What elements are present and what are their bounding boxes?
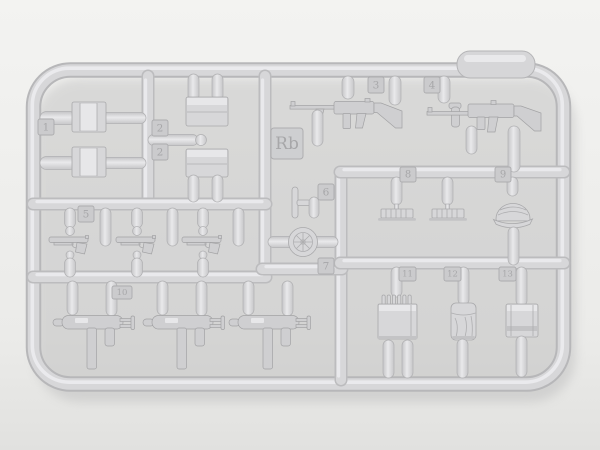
gun-bolt-handle: [491, 101, 496, 105]
tab-2a-label: 2: [157, 123, 164, 135]
sprue-arm: [102, 113, 146, 124]
sprue-post: [342, 76, 354, 99]
sprue-arm: [40, 157, 76, 170]
part-box-1b: [72, 147, 106, 177]
sprue-post: [65, 208, 76, 228]
tab-8-label: 8: [405, 170, 411, 181]
part-ammo-box-2b: [186, 149, 228, 177]
sprue-post: [212, 175, 223, 202]
gun-receiver: [334, 102, 374, 115]
gun-front-sight: [428, 108, 432, 113]
part-number-tab-11: 11: [399, 267, 416, 281]
tab-10-label: 10: [117, 288, 128, 298]
sprue-gate-bulb: [199, 227, 208, 236]
sprue-post: [516, 267, 527, 306]
horizontal-runner-right-upper: [340, 170, 564, 172]
tab-3-label: 3: [373, 80, 380, 92]
drum-spokes: [294, 233, 312, 251]
horizontal-runner-right-lower: [340, 261, 564, 263]
part-crate-13: [506, 304, 538, 337]
sprue-letter-tab: Rb: [271, 128, 303, 159]
tab-2b-label: 2: [157, 147, 164, 159]
vertical-runner-3: [339, 174, 341, 380]
gun-barrel: [427, 112, 470, 116]
sprue-post: [100, 208, 111, 246]
sprue-post: [132, 208, 143, 228]
part-box-1a: [72, 102, 106, 132]
vertical-runner-2: [263, 76, 265, 274]
sprue-post: [442, 177, 453, 205]
part-number-tab-2b: 2: [152, 144, 168, 160]
part-number-tab-10: 10: [112, 286, 132, 299]
sprue-post: [312, 110, 323, 146]
gun-receiver: [468, 104, 514, 118]
tab-1-label: 1: [43, 122, 50, 134]
sprue-handle-lug: [457, 51, 535, 78]
sprue-post: [402, 340, 413, 378]
sprue-post: [457, 339, 468, 378]
sprue-post: [198, 208, 209, 228]
tab-4-label: 4: [429, 80, 436, 92]
gun-barrel: [290, 106, 336, 110]
sprue-post: [233, 208, 244, 246]
sprue-post: [132, 258, 143, 277]
sprue-gate-bulb: [133, 227, 142, 236]
sprue-gate-bulb: [66, 227, 75, 236]
sprue-post: [508, 126, 520, 172]
gun-rear-sight: [365, 99, 370, 103]
gun-magazine: [343, 114, 351, 129]
sprue-post: [188, 175, 199, 202]
sprue-post: [198, 258, 209, 277]
part-number-tab-4: 4: [424, 77, 440, 93]
part-magazine-clip-8a: [378, 209, 416, 221]
sprue-post: [508, 227, 519, 265]
part-pouch-12: [451, 303, 476, 340]
part-magazine-clip-8b: [429, 209, 467, 221]
part-number-tab-2a: 2: [152, 120, 168, 136]
part-ammo-box-2a: [186, 97, 228, 126]
sprue-post: [65, 258, 76, 277]
tab-9-label: 9: [500, 170, 506, 181]
tab-11-label: 11: [402, 269, 413, 279]
part-drum-magazine-7: [289, 228, 318, 257]
sprue-post: [243, 281, 254, 315]
tab-5-label: 5: [83, 209, 90, 221]
sprue-letter-label: Rb: [275, 134, 299, 154]
tab-6-label: 6: [323, 187, 330, 199]
part-number-tab-1: 1: [38, 119, 54, 135]
part-number-tab-8: 8: [400, 167, 416, 182]
sprue-post: [196, 281, 207, 316]
sprue-post: [309, 197, 319, 218]
sprue-photograph: Rb 1: [0, 0, 600, 450]
sprue-post: [466, 126, 477, 154]
sprue-post: [282, 281, 293, 316]
tab-13-label: 13: [502, 269, 513, 279]
sprue-post: [167, 208, 178, 246]
gun-magazine: [477, 117, 485, 130]
tab-12-label: 12: [447, 269, 458, 279]
horizontal-runner-left-upper: [33, 202, 266, 204]
part-number-tab-13: 13: [499, 267, 516, 281]
part-number-tab-3: 3: [368, 77, 384, 93]
sprue-arm: [102, 158, 146, 169]
part-number-tab-6: 6: [318, 184, 334, 200]
sprue-arm-tip: [196, 135, 207, 146]
sprue-post: [157, 281, 168, 315]
sprue-post: [516, 336, 527, 377]
sprue-post: [383, 340, 394, 378]
lug-highlight: [464, 55, 526, 62]
vertical-runner-1: [146, 76, 148, 202]
gun-front-sight: [291, 102, 295, 107]
part-number-tab-12: 12: [444, 267, 461, 281]
sprue-post: [389, 76, 401, 105]
part-ribbed-box-11: [378, 295, 417, 339]
part-number-tab-7: 7: [318, 258, 334, 274]
sprue-post: [67, 281, 78, 315]
tab-7-label: 7: [323, 261, 330, 273]
part-number-tab-9: 9: [495, 167, 511, 182]
part-number-tab-5: 5: [78, 206, 94, 222]
